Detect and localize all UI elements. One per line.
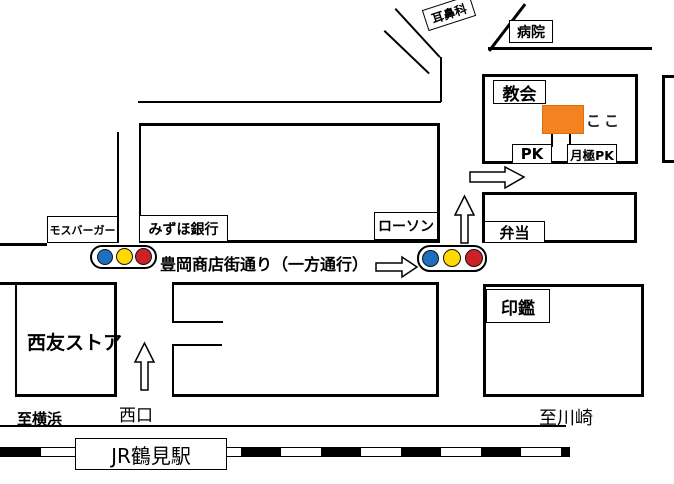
route-arrows-layer xyxy=(0,0,674,484)
route-arrow-right-to-destination xyxy=(470,167,524,188)
hand-drawn-access-map: 教会 ここ PK 月極PK 耳鼻科 病院 モスバーガー みずほ銀行 ローソン 弁… xyxy=(0,0,674,484)
route-arrow-east-along-street xyxy=(376,257,417,277)
route-arrow-up-at-signal xyxy=(455,196,474,243)
route-arrow-up-west-exit-street xyxy=(135,343,154,390)
